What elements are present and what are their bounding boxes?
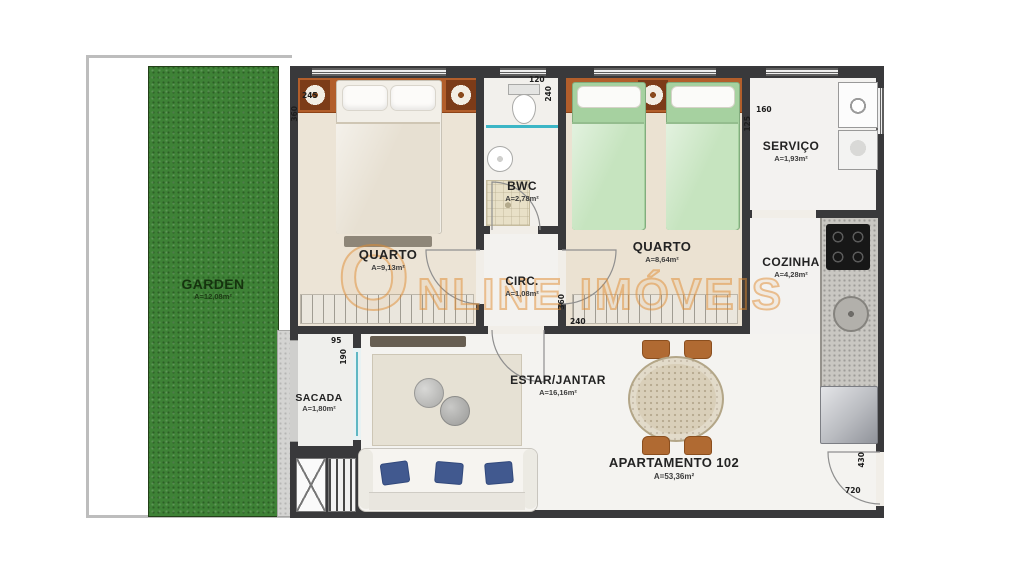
dim-label: 125 (744, 116, 752, 132)
label-quarto-2: QUARTO A=8,64m² (602, 240, 722, 265)
room-area: A=4,28m² (750, 271, 832, 280)
wardrobe-quarto-1 (300, 294, 474, 324)
bed-pillow-right (390, 85, 436, 111)
twin-bed-left-pillow (577, 86, 641, 108)
twin-bed-right-pillow (671, 86, 735, 108)
foot-bench (344, 236, 432, 247)
room-name: COZINHA (750, 256, 832, 270)
dining-table (628, 356, 724, 442)
door-gap-servico-cozinha (752, 210, 816, 218)
label-sacada: SACADA A=1,80m² (288, 392, 350, 414)
fridge (820, 386, 878, 444)
sofa-pillow-2 (434, 461, 464, 485)
unit-area: A=53,36m² (588, 472, 760, 481)
room-name: CIRC. (490, 276, 554, 289)
label-cozinha: COZINHA A=4,28m² (750, 256, 832, 279)
door-gap-bwc (490, 226, 538, 234)
dim-label: 95 (331, 337, 341, 345)
room-area: A=1,93m² (745, 155, 837, 164)
dining-chair-3 (642, 436, 670, 455)
dim-label: 430 (858, 452, 866, 468)
unit-name: APARTAMENTO 102 (588, 456, 760, 471)
property-line-top (86, 55, 292, 58)
washbasin (487, 146, 513, 172)
label-servico: SERVIÇO A=1,93m² (745, 140, 837, 163)
sofa-backrest (369, 492, 525, 510)
dim-label: 120 (529, 76, 545, 84)
room-name: QUARTO (330, 248, 446, 263)
sofa-pillow-3 (484, 461, 514, 485)
room-area: A=9,13m² (330, 264, 446, 273)
room-area: A=8,64m² (602, 256, 722, 265)
label-quarto-1: QUARTO A=9,13m² (330, 248, 446, 273)
nightstand-right (446, 80, 476, 110)
sofa (358, 448, 538, 512)
window-quarto-1 (312, 68, 446, 76)
stairs-box (328, 458, 356, 512)
dim-label: 360 (558, 294, 566, 310)
dim-label: 240 (570, 318, 586, 326)
door-gap-quarto-1 (476, 250, 484, 304)
room-area: A=1,80m² (288, 405, 350, 414)
washing-machine (838, 82, 878, 128)
room-area: A=2,78m² (490, 195, 554, 204)
shower-glass-line (486, 125, 558, 128)
room-name: SERVIÇO (745, 140, 837, 154)
room-name: SACADA (288, 392, 350, 404)
laundry-tank (838, 130, 878, 170)
label-apartamento-102: APARTAMENTO 102 A=53,36m² (588, 456, 760, 481)
tv-rack (370, 336, 466, 347)
twin-bed-right-blanket (666, 122, 738, 230)
dim-label: 190 (340, 349, 348, 365)
label-estar-jantar: ESTAR/JANTAR A=16,16m² (488, 374, 628, 397)
dining-chair-2 (684, 340, 712, 359)
door-gap-circ-estar (488, 326, 544, 334)
floor-plan: ONLINE IMÓVEIS GARDEN A=12,08m² QUARTO A… (0, 0, 1024, 575)
pouf-2 (440, 396, 470, 426)
window-servico (766, 68, 838, 76)
bed-pillow-left (342, 85, 388, 111)
room-area: A=16,16m² (488, 389, 628, 398)
bed-blanket (336, 122, 440, 234)
room-name: ESTAR/JANTAR (488, 374, 628, 388)
label-circ: CIRC. A=1,08m² (490, 276, 554, 299)
sacada-railing (290, 340, 298, 442)
room-area: A=1,08m² (490, 290, 554, 299)
cooktop (826, 224, 870, 270)
dim-label: 245 (302, 92, 318, 100)
sofa-arm-right (523, 449, 537, 509)
dim-label: 240 (545, 86, 553, 102)
shaft-box (296, 458, 326, 512)
label-bwc: BWC A=2,78m² (490, 180, 554, 203)
kitchen-sink (833, 296, 869, 332)
room-name: GARDEN (152, 276, 274, 292)
room-name: QUARTO (602, 240, 722, 255)
window-quarto-2 (594, 68, 716, 76)
door-gap-entrance (876, 452, 884, 506)
sacada-door-glass-line (356, 352, 358, 436)
pouf-1 (414, 378, 444, 408)
room-area: A=12,08m² (152, 293, 274, 302)
dim-label: 360 (291, 106, 299, 122)
wardrobe-quarto-2 (572, 294, 738, 324)
dim-label: 160 (756, 106, 772, 114)
property-line-left (86, 55, 89, 518)
sofa-pillow-1 (380, 460, 411, 486)
twin-bed-left-blanket (572, 122, 644, 230)
room-name: BWC (490, 180, 554, 194)
label-garden: GARDEN A=12,08m² (152, 276, 274, 302)
dining-chair-4 (684, 436, 712, 455)
dim-label: 720 (845, 487, 861, 495)
